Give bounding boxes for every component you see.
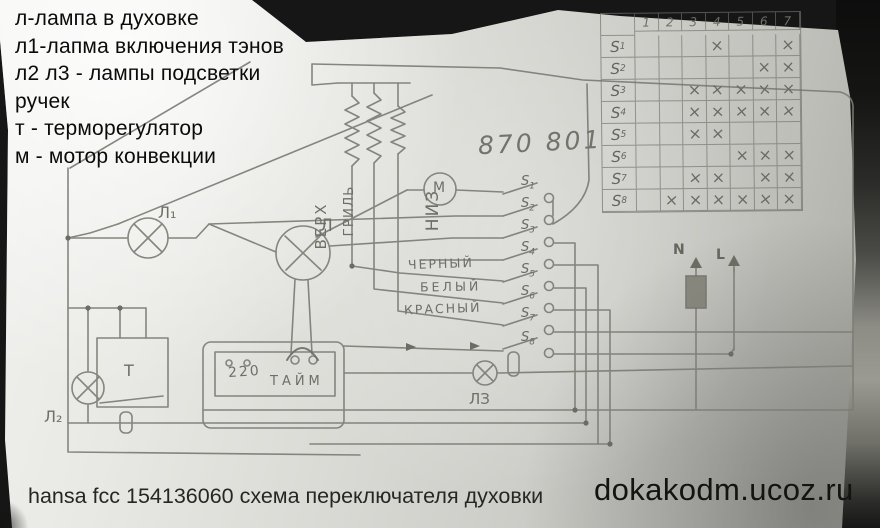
table-cell	[636, 101, 660, 123]
lamp-l1-label: Л₁	[158, 203, 176, 222]
switch-label-s5: S5	[521, 262, 535, 280]
x-mark: ×	[758, 189, 773, 209]
table-cell	[660, 123, 684, 145]
table-cell: ×	[683, 123, 707, 145]
table-row-label: S6	[602, 146, 636, 168]
table-cell: ×	[754, 144, 778, 166]
oven-lamp-label: Л	[320, 216, 333, 236]
x-mark: ×	[687, 124, 702, 144]
x-mark: ×	[735, 189, 749, 208]
table-cell	[637, 189, 661, 211]
table-cell	[659, 79, 683, 101]
table-row-label: S2	[601, 58, 635, 80]
x-mark: ×	[758, 145, 773, 165]
x-mark: ×	[757, 79, 773, 99]
x-mark: ×	[687, 102, 702, 122]
table-col-header: 4	[705, 13, 729, 31]
table-cell	[682, 35, 706, 57]
x-mark: ×	[711, 124, 725, 144]
table-cell: ×	[730, 144, 754, 166]
x-mark: ×	[664, 190, 679, 210]
table-cell	[660, 167, 684, 189]
table-cell	[731, 166, 755, 188]
switch-label-s7: S7	[521, 306, 535, 324]
table-cell: ×	[706, 101, 730, 123]
table-row: S2××	[601, 56, 800, 80]
table-cell	[683, 145, 707, 167]
switch-label-s6: S6	[521, 284, 535, 302]
table-cell	[730, 122, 754, 144]
table-cell: ×	[777, 100, 801, 122]
legend-line: л1-лапма включения тэнов	[15, 33, 335, 61]
heater-grill-label: ГРИЛЬ	[341, 181, 357, 241]
table-cell	[682, 57, 706, 79]
table-cell	[753, 34, 777, 56]
table-cell: ×	[778, 166, 802, 188]
table-cell: ×	[707, 167, 731, 189]
table-cell	[729, 56, 753, 78]
switch-table: 1234567S1××S2××S3×××××S4×××××S5××S6×××S7…	[600, 11, 803, 213]
x-mark: ×	[710, 35, 725, 55]
table-col-header: 1	[635, 13, 659, 31]
table-col-header: 6	[752, 12, 776, 30]
x-mark: ×	[710, 79, 725, 99]
switch-label-s3: S3	[521, 218, 535, 236]
table-cell	[706, 57, 730, 79]
watermark: dokakodm.ucoz.ru	[594, 472, 854, 508]
table-row-label: S1	[601, 36, 635, 58]
table-cell: ×	[706, 79, 730, 101]
x-mark: ×	[735, 145, 749, 164]
legend-line: м - мотор конвекции	[15, 143, 335, 171]
x-mark: ×	[759, 167, 773, 186]
table-cell	[635, 57, 659, 79]
table-cell	[659, 35, 683, 57]
x-mark: ×	[688, 190, 702, 210]
x-mark: ×	[711, 102, 725, 122]
legend-line: л2 л3 - лампы подсветки	[15, 60, 335, 88]
legend-line: ручек	[15, 88, 335, 116]
table-cell	[659, 101, 683, 123]
x-mark: ×	[687, 167, 702, 187]
x-mark: ×	[781, 101, 796, 121]
bottom-caption: hansa fcc 154136060 схема переключателя …	[28, 484, 543, 509]
thermostat-label: Т	[124, 361, 134, 380]
lamp-l3-label: ЛЗ	[469, 390, 490, 408]
table-cell	[659, 57, 683, 79]
table-cell	[707, 145, 731, 167]
switch-label-s8: S8	[521, 330, 535, 348]
timer-voltage-label: 220	[227, 363, 261, 381]
table-cell: ×	[754, 188, 778, 210]
table-corner-cell	[601, 14, 635, 36]
x-mark: ×	[780, 35, 795, 55]
table-cell: ×	[684, 189, 708, 211]
lamp-l2-label: Л₂	[44, 407, 62, 426]
x-mark: ×	[712, 168, 726, 187]
table-cell: ×	[707, 123, 731, 145]
x-mark: ×	[711, 189, 726, 209]
table-cell: ×	[683, 101, 707, 123]
table-col-header: 3	[682, 13, 706, 31]
table-row-label: S8	[603, 190, 637, 212]
table-cell	[636, 145, 660, 167]
table-cell: ×	[683, 79, 707, 101]
table-cell: ×	[777, 144, 801, 166]
table-col-header: 2	[658, 13, 682, 31]
table-cell: ×	[730, 78, 754, 100]
table-cell: ×	[754, 166, 778, 188]
neutral-terminal-label: N	[673, 242, 685, 258]
table-cell	[729, 34, 753, 56]
legend-line: т - терморегулятор	[15, 115, 335, 143]
switch-label-s1: S1	[521, 174, 535, 192]
table-cell: ×	[753, 56, 777, 78]
table-cell: ×	[753, 100, 777, 122]
table-cell	[637, 167, 661, 189]
table-cell	[777, 122, 801, 144]
table-cell	[754, 122, 778, 144]
table-col-header: 5	[729, 12, 753, 30]
table-cell	[660, 145, 684, 167]
wire-black-label: ЧЕРНЫЙ	[408, 255, 474, 272]
wire-white-label: БЕЛЫЙ	[420, 278, 482, 294]
table-row: S7××××	[603, 166, 802, 190]
line-terminal-label: L	[716, 247, 725, 263]
table-col-header: 7	[776, 12, 800, 30]
x-mark: ×	[781, 166, 796, 186]
table-row: S6×××	[602, 144, 801, 168]
table-cell	[636, 79, 660, 101]
table-cell: ×	[776, 56, 800, 78]
motor-label: М	[433, 180, 445, 196]
table-row: S5××	[602, 122, 801, 146]
legend-line: л-лампа в духовке	[15, 5, 335, 33]
table-cell: ×	[707, 189, 731, 211]
table-row-label: S4	[602, 102, 636, 124]
x-mark: ×	[734, 101, 749, 121]
x-mark: ×	[782, 145, 796, 165]
table-cell: ×	[730, 100, 754, 122]
table-row: S3×××××	[602, 78, 801, 102]
table-cell	[636, 123, 660, 145]
table-cell: ×	[706, 35, 730, 57]
table-cell: ×	[660, 189, 684, 211]
table-cell: ×	[684, 167, 708, 189]
table-cell: ×	[776, 34, 800, 56]
x-mark: ×	[687, 80, 701, 99]
table-cell: ×	[731, 188, 755, 210]
legend-text: л-лампа в духовкел1-лапма включения тэно…	[15, 5, 335, 170]
x-mark: ×	[780, 57, 795, 77]
x-mark: ×	[734, 80, 748, 99]
switch-label-s2: S2	[521, 196, 535, 214]
fuse-symbol	[686, 276, 706, 308]
x-mark: ×	[782, 189, 796, 208]
table-cell: ×	[753, 78, 777, 100]
table-row-label: S3	[602, 80, 636, 102]
wire-red-label: КРАСНЫЙ	[404, 300, 482, 318]
photo-of-schematic: ВЕРХ ГРИЛЬ НИЗ 870 801 М Л₁ Л Л₂ ЛЗ Т 22…	[0, 0, 880, 528]
x-mark: ×	[758, 101, 772, 120]
table-row: S4×××××	[602, 100, 801, 124]
table-cell: ×	[777, 78, 801, 100]
x-mark: ×	[757, 57, 771, 76]
table-cell	[635, 35, 659, 57]
table-cell: ×	[778, 188, 802, 210]
table-row: S1××	[601, 34, 800, 58]
switch-label-s4: S4	[521, 240, 535, 258]
table-row-label: S5	[602, 124, 636, 146]
x-mark: ×	[781, 79, 795, 98]
timer-label: ТАЙМ	[270, 374, 324, 389]
table-row: S8××××××	[603, 188, 802, 212]
table-row-label: S7	[603, 168, 637, 190]
